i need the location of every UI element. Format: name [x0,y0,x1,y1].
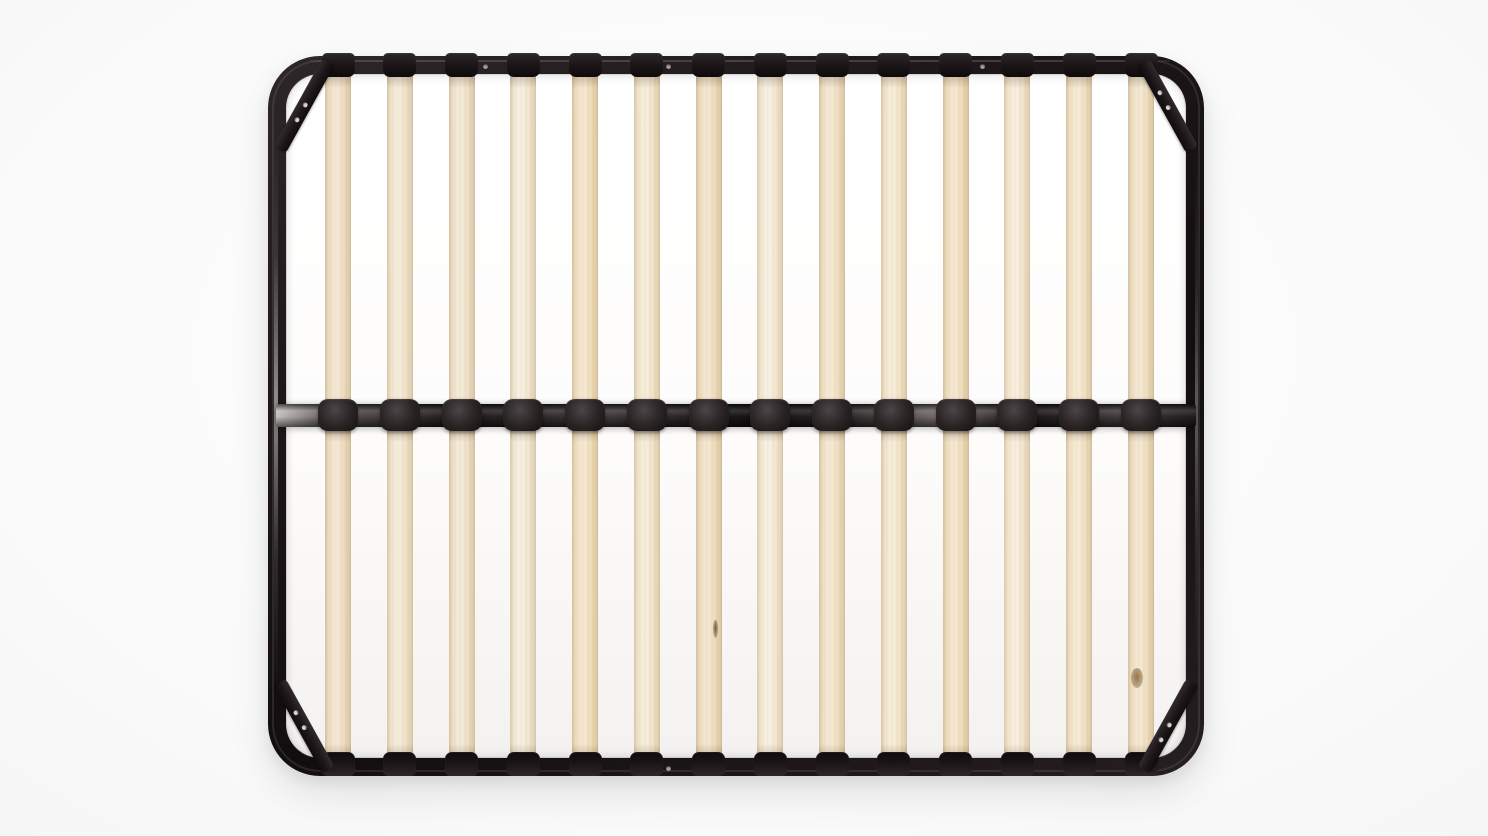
slat-holder-cap-top [692,53,725,77]
bracket-hole [301,724,308,731]
wood-slat-top [943,70,969,414]
center-rail-cap [565,399,605,431]
slat-holder-cap-top [569,53,602,77]
center-rail-cap [812,399,852,431]
rail-rivet-hole [666,64,671,69]
product-photo [0,0,1488,836]
center-rail-cap [997,399,1037,431]
center-rail-cap [689,399,729,431]
center-rail-cap [936,399,976,431]
center-rail-cap [318,399,358,431]
slat-holder-cap-top [630,53,663,77]
wood-slat-bottom [757,424,783,762]
center-rail-cap [1121,399,1161,431]
center-rail-cap [380,399,420,431]
slat-holder-cap-bottom [1063,752,1096,776]
slat-holder-cap-top [507,53,540,77]
slat-holder-cap-top [445,53,478,77]
rail-rivet-hole [483,64,488,69]
rail-rivet-hole [666,766,671,771]
wood-slat-bottom [572,424,598,762]
slat-holder-cap-top [1001,53,1034,77]
slat-holder-cap-bottom [1001,752,1034,776]
wood-slat-bottom [1066,424,1092,762]
bracket-hole [301,101,308,108]
bracket-hole [1165,721,1172,728]
slat-holder-cap-bottom [692,752,725,776]
wood-slat-top [325,70,351,414]
slat-holder-cap-bottom [569,752,602,776]
center-rail-cap [874,399,914,431]
center-rail-cap [442,399,482,431]
center-rail-cap [503,399,543,431]
slat-holder-cap-bottom [939,752,972,776]
wood-slat-top [1128,70,1154,414]
center-rail-cap [750,399,790,431]
center-rail-cap [1059,399,1099,431]
wood-slat-top [1004,70,1030,414]
wood-slat-bottom [1004,424,1030,762]
slat-holder-cap-top [816,53,849,77]
rail-rivet-hole [980,64,985,69]
wood-slat-top [1066,70,1092,414]
wood-slat-bottom [881,424,907,762]
slat-holder-cap-top [383,53,416,77]
wood-slat-bottom [387,424,413,762]
wood-slat-top [696,70,722,414]
wood-slat-bottom [819,424,845,762]
wood-slat-bottom [325,424,351,762]
slat-holder-cap-bottom [445,752,478,776]
slat-holder-cap-top [1063,53,1096,77]
slat-holder-cap-bottom [630,752,663,776]
wood-slat-bottom [696,424,722,762]
wood-slat-bottom [449,424,475,762]
center-rail-cap [627,399,667,431]
wood-slat-top [634,70,660,414]
wood-slat-top [510,70,536,414]
wood-slat-bottom [1128,424,1154,762]
slat-holder-cap-bottom [507,752,540,776]
wood-slat-bottom [943,424,969,762]
wood-slat-top [819,70,845,414]
wood-slat-top [449,70,475,414]
slat-holder-cap-bottom [754,752,787,776]
bracket-hole [1157,736,1164,743]
wood-slat-top [387,70,413,414]
slat-holder-cap-top [754,53,787,77]
slat-holder-cap-top [877,53,910,77]
bracket-hole [1157,89,1164,96]
bracket-hole [1165,104,1172,111]
slat-holder-cap-bottom [816,752,849,776]
slat-holder-cap-bottom [877,752,910,776]
slat-holder-cap-top [939,53,972,77]
wood-slat-top [757,70,783,414]
wood-slat-top [881,70,907,414]
bracket-hole [293,116,300,123]
wood-slat-bottom [510,424,536,762]
slat-holder-cap-bottom [383,752,416,776]
wood-slat-top [572,70,598,414]
bracket-hole [293,709,300,716]
wood-slat-bottom [634,424,660,762]
